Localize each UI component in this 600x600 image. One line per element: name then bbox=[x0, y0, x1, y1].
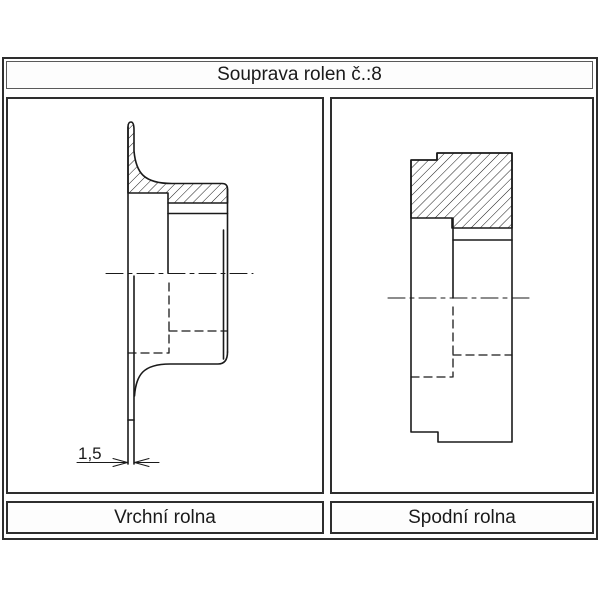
top-roller-panel bbox=[6, 97, 324, 494]
bottom-roller-label: Spodní rolna bbox=[408, 507, 516, 529]
bottom-roller-label-box: Spodní rolna bbox=[330, 501, 594, 534]
title-bar: Souprava rolen č.:8 bbox=[6, 61, 593, 89]
page-title: Souprava rolen č.:8 bbox=[217, 64, 382, 86]
top-roller-label-box: Vrchní rolna bbox=[6, 501, 324, 534]
top-roller-label: Vrchní rolna bbox=[114, 507, 216, 529]
bottom-roller-panel bbox=[330, 97, 594, 494]
